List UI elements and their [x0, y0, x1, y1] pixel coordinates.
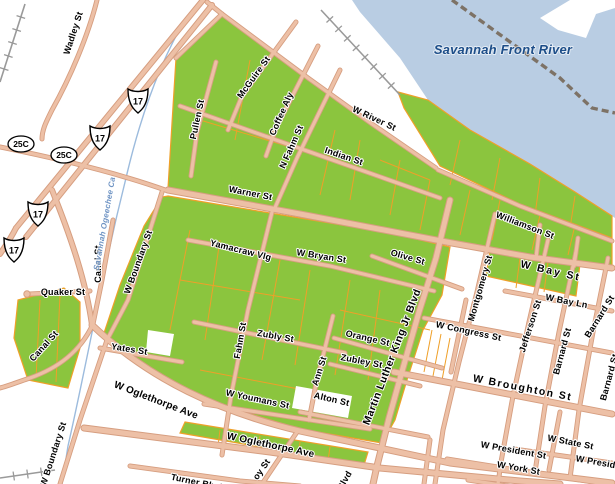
dead-end-circle — [24, 291, 30, 297]
water-label: Savannah Front River — [434, 42, 573, 57]
shield-number: 17 — [9, 246, 19, 256]
shield-number: 25C — [56, 150, 72, 160]
land-gap — [146, 330, 174, 356]
shield-number: 17 — [95, 134, 105, 144]
state-route-oval: 25C — [51, 147, 77, 163]
shield-number: 17 — [133, 97, 143, 107]
street-label: Quaker St — [41, 287, 85, 297]
state-route-oval: 25C — [8, 136, 34, 152]
savannah-map[interactable]: Wadley StW River StIndian StMcGuire StCo… — [0, 0, 615, 484]
shield-number: 25C — [13, 139, 29, 149]
shield-number: 17 — [33, 210, 43, 220]
map-canvas[interactable]: Wadley StW River StIndian StMcGuire StCo… — [0, 0, 615, 484]
